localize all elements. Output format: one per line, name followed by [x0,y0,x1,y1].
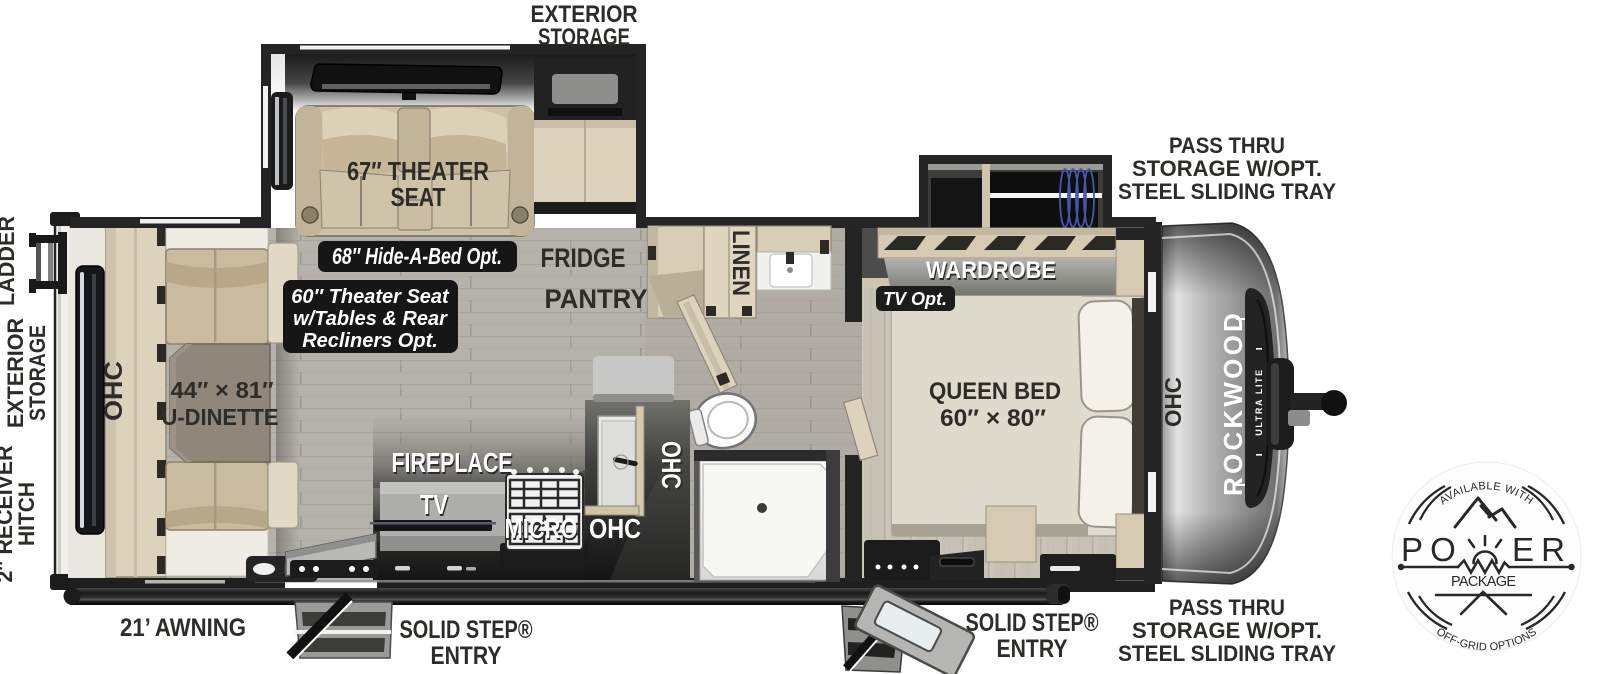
svg-text:44″ × 81″: 44″ × 81″ [171,377,274,403]
svg-text:STORAGE W/OPT.: STORAGE W/OPT. [1132,156,1322,181]
svg-text:SOLID STEP®: SOLID STEP® [966,609,1099,637]
svg-text:OHC: OHC [1160,377,1186,427]
svg-text:ROCKWOOD: ROCKWOOD [1218,310,1248,496]
svg-text:21’ AWNING: 21’ AWNING [120,614,246,642]
svg-text:ENTRY: ENTRY [431,642,502,670]
svg-text:60″ × 80″: 60″ × 80″ [940,405,1047,432]
svg-text:PANTRY: PANTRY [545,284,648,314]
svg-text:STORAGE: STORAGE [538,24,630,51]
svg-text:w/Tables & Rear: w/Tables & Rear [293,308,448,330]
svg-text:PASS THRU: PASS THRU [1169,595,1285,620]
svg-text:QUEEN BED: QUEEN BED [929,378,1061,405]
svg-text:FRIDGE: FRIDGE [541,243,626,273]
svg-text:PACKAGE: PACKAGE [1451,574,1519,590]
svg-text:68″ Hide-A-Bed Opt.: 68″ Hide-A-Bed Opt. [332,243,502,269]
svg-text:STORAGE: STORAGE [25,325,50,421]
svg-text:STORAGE W/OPT.: STORAGE W/OPT. [1132,618,1322,643]
svg-text:ENTRY: ENTRY [997,635,1068,663]
svg-text:R: R [1541,531,1565,568]
svg-text:WARDROBE: WARDROBE [926,257,1056,284]
svg-text:PASS THRU: PASS THRU [1169,133,1285,158]
svg-text:E: E [1512,531,1534,568]
svg-text:HITCH: HITCH [14,482,39,546]
svg-text:O: O [1430,531,1456,568]
svg-text:MICRO: MICRO [505,513,578,544]
svg-text:FIREPLACE: FIREPLACE [392,447,513,478]
svg-text:TV: TV [420,489,448,520]
svg-text:STEEL SLIDING TRAY: STEEL SLIDING TRAY [1118,641,1336,666]
svg-text:ULTRA LITE: ULTRA LITE [1254,368,1264,436]
svg-text:LADDER: LADDER [0,216,19,306]
svg-text:SEAT: SEAT [391,182,446,212]
svg-text:OHC: OHC [656,441,686,489]
svg-text:OHC: OHC [100,361,128,421]
svg-text:U-DINETTE: U-DINETTE [162,404,279,430]
svg-text:OHC: OHC [589,513,641,544]
svg-text:LINEN: LINEN [727,230,754,296]
svg-text:TV Opt.: TV Opt. [883,289,947,309]
svg-text:Recliners Opt.: Recliners Opt. [302,330,438,352]
svg-text:SOLID STEP®: SOLID STEP® [400,616,533,644]
svg-text:60″ Theater Seat: 60″ Theater Seat [291,286,450,308]
svg-text:STEEL SLIDING TRAY: STEEL SLIDING TRAY [1118,179,1336,204]
svg-text:P: P [1401,531,1423,568]
